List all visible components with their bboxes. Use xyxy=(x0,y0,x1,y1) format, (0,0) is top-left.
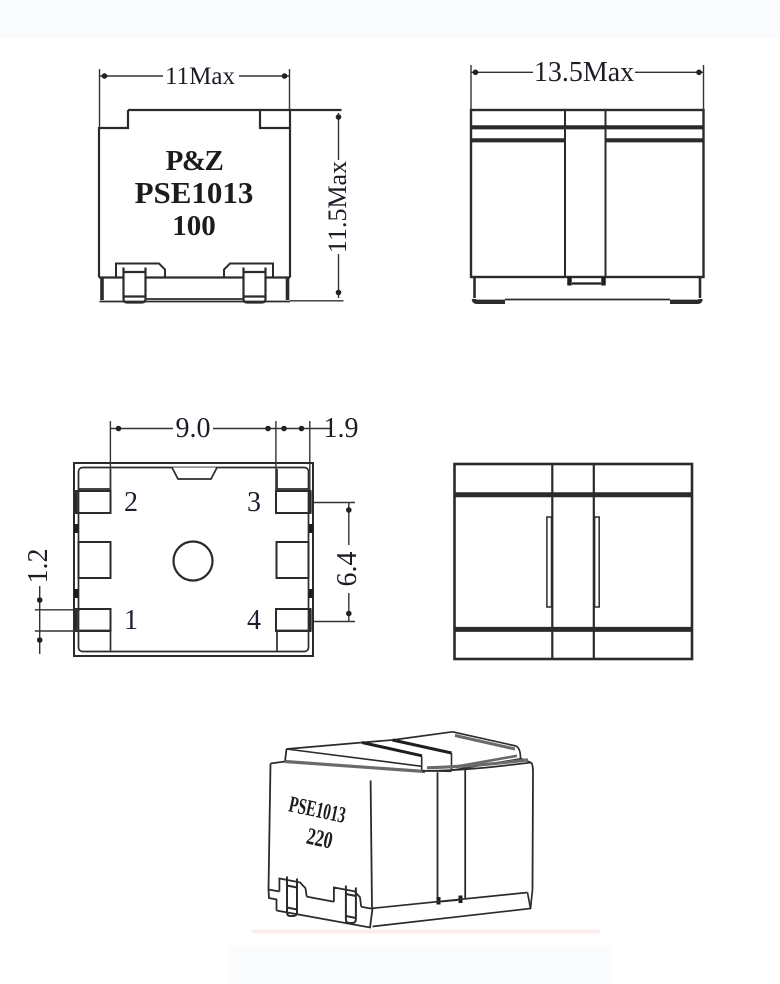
svg-text:11Max: 11Max xyxy=(165,63,235,90)
svg-text:100: 100 xyxy=(172,210,216,242)
svg-text:13.5Max: 13.5Max xyxy=(534,57,634,88)
svg-text:4: 4 xyxy=(247,605,261,636)
svg-text:1.2: 1.2 xyxy=(23,549,54,584)
svg-text:220: 220 xyxy=(304,822,335,854)
svg-text:6.4: 6.4 xyxy=(332,552,363,587)
svg-text:2: 2 xyxy=(124,487,138,518)
svg-text:1: 1 xyxy=(124,605,138,636)
svg-text:P&Z: P&Z xyxy=(166,145,223,177)
svg-text:1.9: 1.9 xyxy=(324,413,359,444)
svg-text:3: 3 xyxy=(247,487,261,518)
svg-text:11.5Max: 11.5Max xyxy=(323,161,352,253)
svg-text:9.0: 9.0 xyxy=(176,413,211,444)
svg-text:PSE1013: PSE1013 xyxy=(135,175,254,210)
